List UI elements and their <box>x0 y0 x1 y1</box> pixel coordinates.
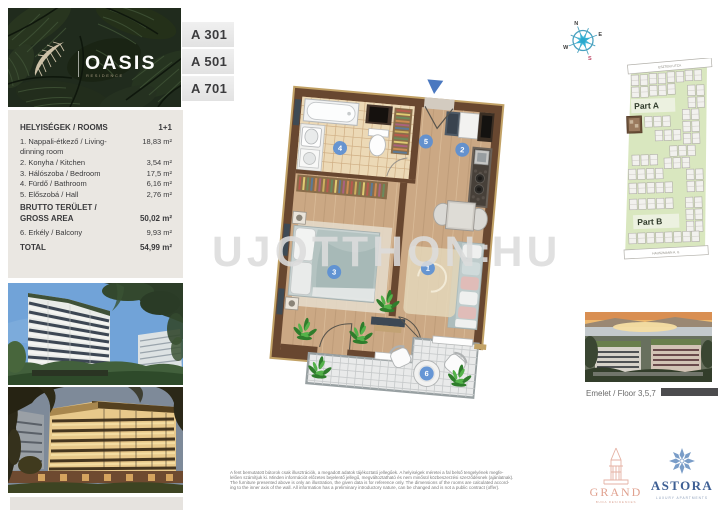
svg-text:5: 5 <box>423 137 428 146</box>
svg-text:6: 6 <box>424 369 429 378</box>
svg-text:2: 2 <box>460 145 465 154</box>
svg-text:Part A: Part A <box>634 100 659 111</box>
svg-text:ASTORA: ASTORA <box>651 478 713 493</box>
svg-text:E: E <box>598 32 602 38</box>
svg-text:N: N <box>574 21 578 27</box>
svg-text:W: W <box>563 45 569 51</box>
svg-text:GRAND: GRAND <box>590 485 642 499</box>
svg-text:LUXURY APARTMENTS: LUXURY APARTMENTS <box>656 496 708 500</box>
svg-text:Part B: Part B <box>637 216 662 227</box>
svg-text:BUDA RESIDENCES: BUDA RESIDENCES <box>596 500 637 504</box>
svg-text:S: S <box>588 56 592 62</box>
